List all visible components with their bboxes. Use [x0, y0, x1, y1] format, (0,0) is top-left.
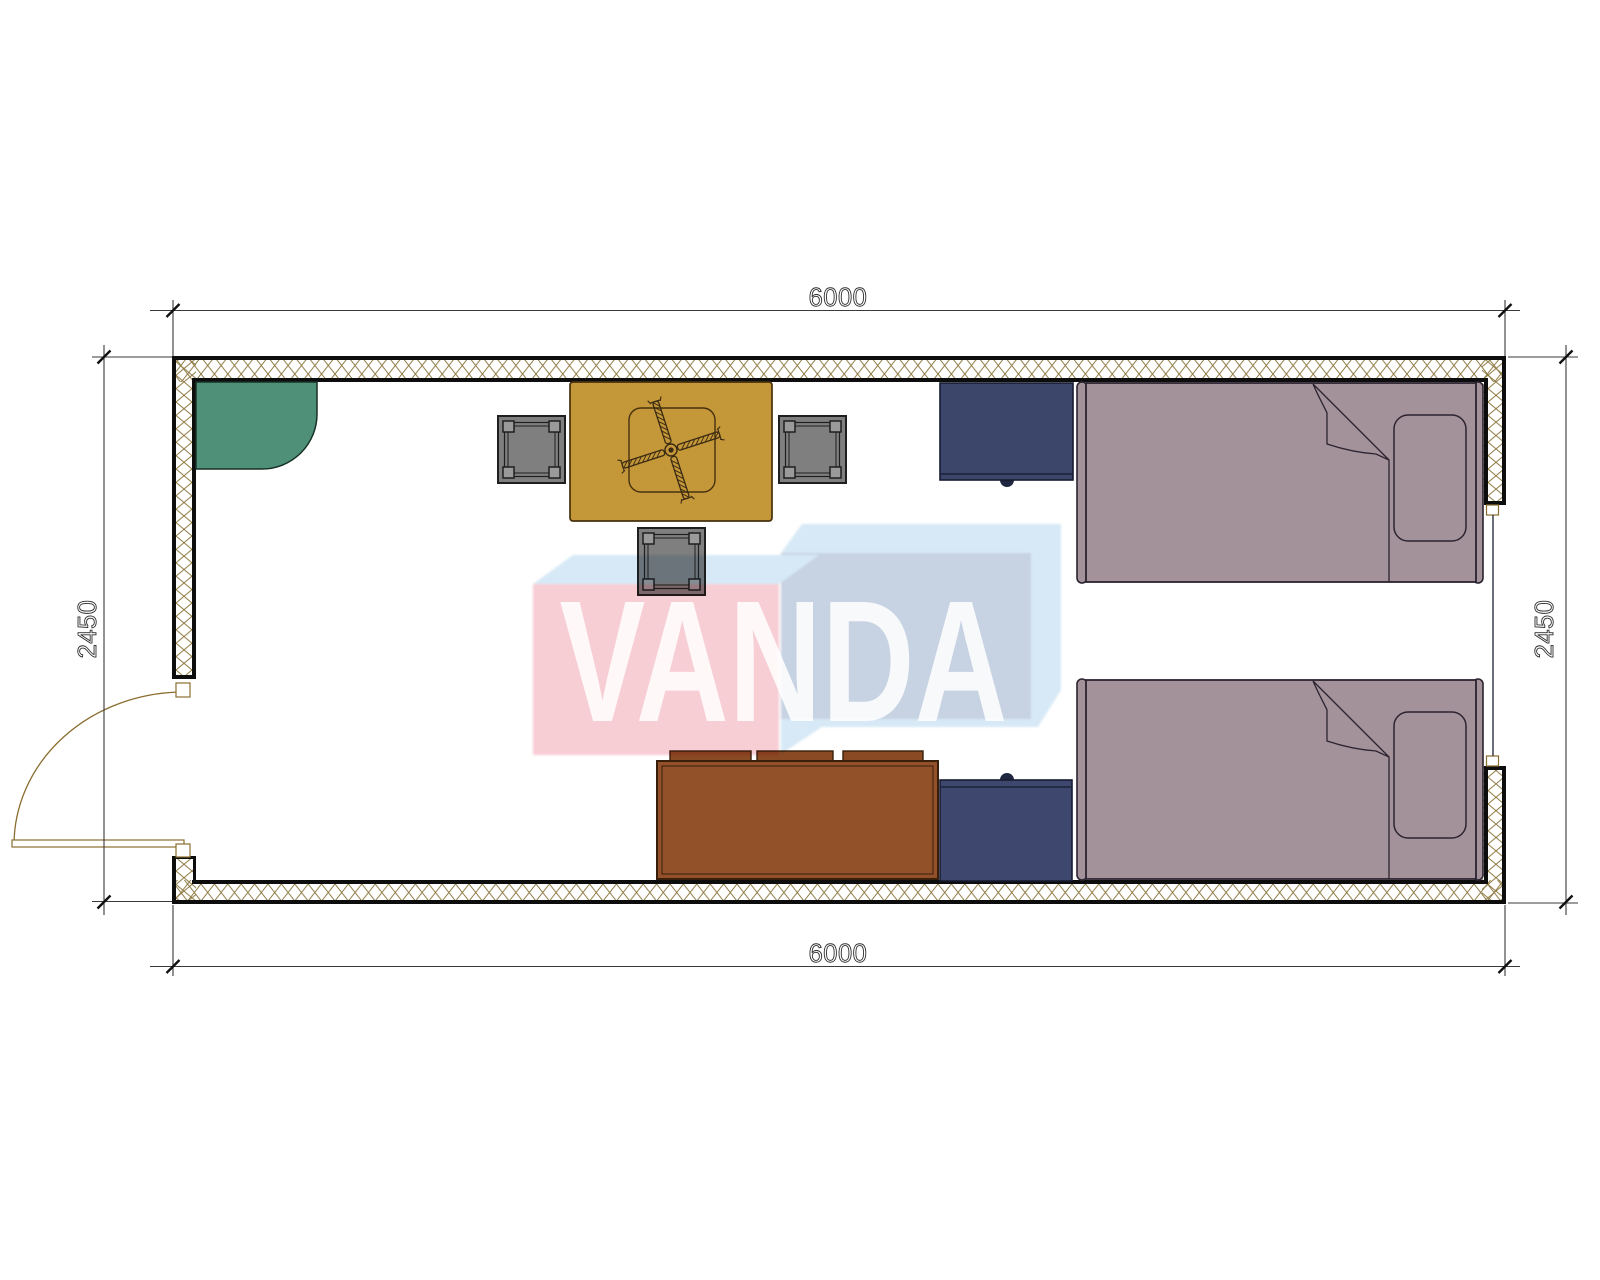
svg-text:VANDA: VANDA	[559, 566, 1007, 759]
svg-text:2450: 2450	[1531, 600, 1559, 659]
svg-text:2450: 2450	[74, 600, 102, 659]
svg-text:6000: 6000	[809, 940, 868, 968]
svg-text:6000: 6000	[809, 284, 868, 312]
